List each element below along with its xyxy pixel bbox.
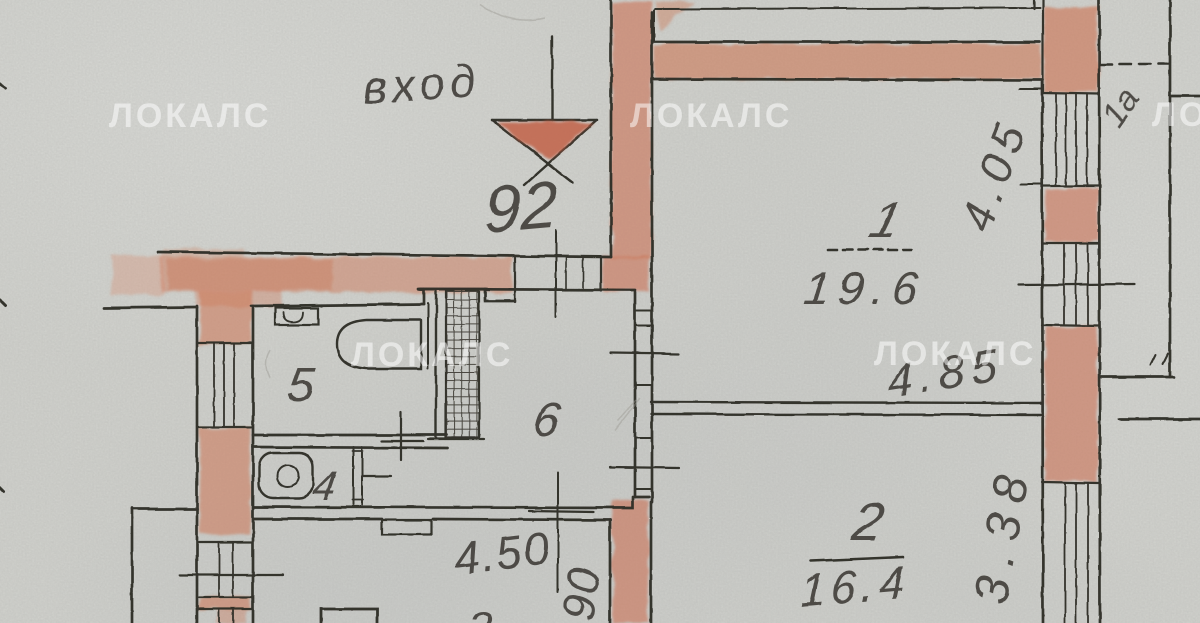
svg-text:ЛОКАЛС: ЛОКАЛС (109, 97, 271, 135)
svg-text:3: 3 (468, 603, 493, 623)
svg-text:ЛОКАЛС: ЛОКАЛС (1152, 96, 1200, 134)
svg-text:16.4: 16.4 (800, 555, 910, 617)
svg-text:ЛОКАЛС: ЛОКАЛС (874, 335, 1036, 373)
svg-text:90: 90 (552, 563, 610, 623)
svg-text:19.6: 19.6 (802, 262, 929, 314)
svg-text:вход: вход (361, 54, 482, 114)
svg-text:92: 92 (484, 167, 558, 248)
svg-text:ЛОКАЛС: ЛОКАЛС (630, 97, 792, 135)
svg-text:ЛОКАЛС: ЛОКАЛС (351, 336, 513, 374)
